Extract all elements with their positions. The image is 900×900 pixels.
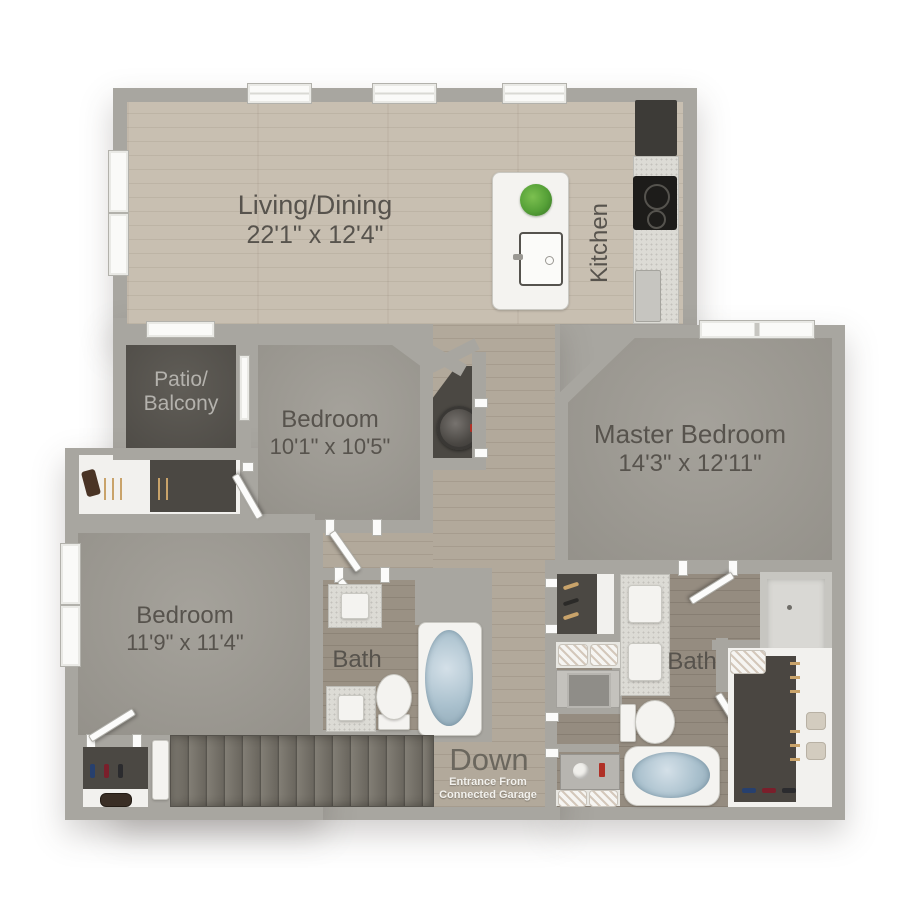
hanger-icon [790,758,800,761]
toilet-bowl [635,700,675,744]
toilet-bowl [376,674,412,720]
door-jamb [380,567,390,583]
dryer-button-icon [599,763,605,777]
wall-closet-west [65,452,79,522]
bench-cushion-icon [730,650,766,674]
shoes-icon [742,788,756,793]
burner-icon [644,184,670,210]
room-name: Living/Dining [238,190,393,220]
window-top-2 [372,83,437,104]
shoes-icon [104,764,109,778]
bedroom2-label: Bedroom 11'9" x 11'4" [105,602,265,655]
hanger-icon [790,690,800,693]
dryer-knob-icon [573,763,589,779]
stairs [170,735,434,807]
hanger-icon [112,478,114,500]
patio-sliding-door [146,321,215,338]
shower-drain-icon [787,605,792,610]
garage-entry-door [152,740,169,800]
room-name: Master Bedroom [594,419,786,449]
hanger-icon [120,478,122,500]
stool-icon [806,742,826,760]
towel-icon [590,644,618,666]
wall-laundry-shelf1 [545,634,622,642]
door-jamb [474,448,488,458]
door-jamb [678,560,688,576]
hanger-icon [790,676,800,679]
master-bath-label: Bath [662,648,722,676]
window-living-left-2 [108,213,129,276]
bath1-vanity [328,584,382,628]
plant-icon [520,184,552,216]
walk-in-closet-rug [734,656,796,802]
window-patio-bedroom1 [239,355,250,421]
faucet-icon [513,254,523,260]
stairs-down-label: Down [430,742,548,778]
room-dims: 11'9" x 11'4" [105,630,265,655]
room-dims: 10'1" x 10'5" [250,434,410,459]
stool-icon [806,712,826,730]
wall-bath1-north [323,568,492,580]
shower [760,572,832,660]
hanger-icon [158,478,160,500]
toilet-tank [620,704,636,742]
shoes-icon [118,764,123,778]
room-name-line1: Patio/ [154,368,208,391]
kitchen-label: Kitchen [555,199,645,287]
linen-closet-shelf [597,574,614,634]
down-text: Down [449,742,528,777]
bathmat-icon [589,790,618,807]
window-bedroom2-left-1 [60,543,81,605]
window-top-3 [502,83,567,104]
bathtub-water [425,630,473,726]
room-name-line2: Balcony [144,392,219,415]
hanger-icon [104,478,106,500]
shoes-icon [762,788,776,793]
hanger-icon [166,478,168,500]
wall-utility-south [433,458,486,470]
wall-patio-south [113,448,253,460]
drain-icon [545,256,554,265]
washer-icon [556,670,620,708]
window-master-top [699,320,815,339]
hanger-icon [790,730,800,733]
door-jamb [242,462,254,472]
room-name: Bedroom [281,406,378,433]
master-bathtub-water [632,752,710,798]
refrigerator-icon [635,100,677,156]
sink-icon [341,593,369,619]
window-living-left-1 [108,150,129,213]
wall-master-west [555,400,568,568]
room-name: Bath [667,648,716,675]
room-name: Bath [332,646,381,673]
door-jamb [372,519,382,536]
hall-closet-dark-floor [150,460,236,512]
washer-door [567,673,611,708]
wall-bedroom1-east [420,360,433,520]
bath1-label: Bath [327,646,387,674]
bag-icon [100,793,132,807]
note-line1: Entrance From [449,776,527,788]
sink-icon [628,585,662,623]
note-line2: Connected Garage [439,789,537,801]
sink-icon [338,695,364,721]
dryer-icon [560,754,620,790]
wall-bedroom1-south [253,520,433,533]
garage-note-label: Entrance From Connected Garage [418,776,558,801]
room-dims: 14'3" x 12'11" [590,450,790,478]
patio-label: Patio/ Balcony [126,368,236,416]
living-dining-label: Living/Dining 22'1" x 12'4" [190,190,440,250]
toilet-icon [374,674,412,730]
room-name: Bedroom [136,602,233,629]
wall-bedroom2-east [310,520,323,747]
room-name: Kitchen [586,203,614,283]
floor-plan: Living/Dining 22'1" x 12'4" Kitchen Pati… [0,0,900,900]
toilet-icon [620,700,674,744]
bathmat-icon [558,790,587,807]
door-jamb [545,712,559,722]
door-jamb [474,398,488,408]
window-top-1 [247,83,312,104]
wall-tub-niche [415,580,478,625]
hanger-icon [790,744,800,747]
sink-icon [628,643,662,681]
room-dims: 22'1" x 12'4" [190,221,440,250]
bedroom1-label: Bedroom 10'1" x 10'5" [250,406,410,459]
shoes-icon [90,764,95,778]
bath1-vanity-2 [326,686,376,732]
hanger-icon [790,662,800,665]
burner-icon [647,210,666,229]
master-vanity [620,574,670,696]
towel-icon [558,644,588,666]
shoes-icon [782,788,796,793]
window-bedroom2-left-2 [60,605,81,667]
master-bedroom-label: Master Bedroom 14'3" x 12'11" [590,420,790,477]
